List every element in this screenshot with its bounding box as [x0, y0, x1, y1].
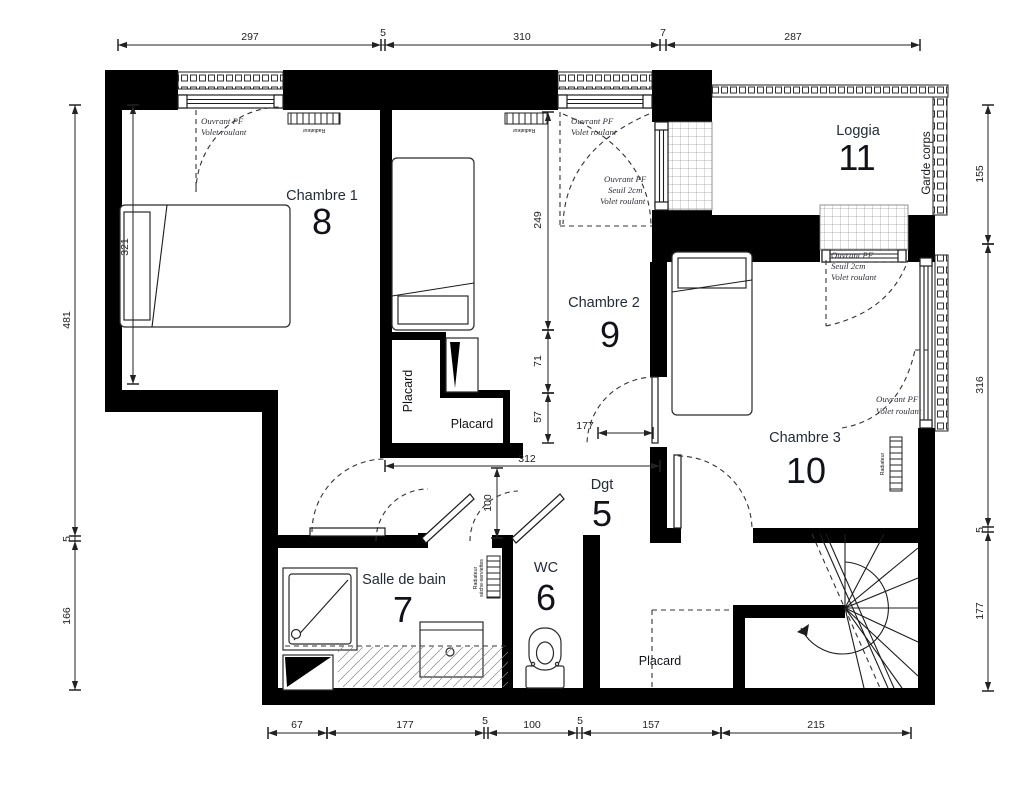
- dim-bottom-6: 157: [642, 719, 660, 731]
- annotation-c3-right-2: Volet roulant: [876, 406, 922, 416]
- annotation-c2-win-2: Volet roulant: [571, 127, 617, 137]
- dim-bottom-2: 177: [396, 719, 414, 731]
- room-label-dgt: Dgt: [591, 477, 614, 493]
- dim-hall-h: 100: [482, 494, 494, 512]
- dim-right-3: 5: [974, 527, 986, 533]
- shower: [283, 568, 357, 650]
- garde-corps-right: [933, 97, 947, 215]
- garde-corps-label: Garde corps: [921, 131, 933, 195]
- door-loggia: [655, 122, 712, 210]
- dim-top-5: 287: [784, 31, 802, 43]
- dim-right-2: 316: [974, 376, 986, 394]
- dim-c2-b: 71: [532, 355, 544, 367]
- dim-c2-c: 57: [532, 411, 544, 423]
- bathroom-cupboard: [283, 655, 333, 690]
- dim-bottom-4: 100: [523, 719, 541, 731]
- radiator-label-3: Radiateur: [880, 452, 886, 475]
- dim-bottom-5: 5: [577, 715, 583, 727]
- dim-left-2: 5: [61, 536, 73, 542]
- window-chambre1: [178, 72, 283, 108]
- room-label-sdb: Salle de bain: [362, 572, 446, 588]
- bed-chambre3: [672, 252, 752, 415]
- annotation-c1-win-1: Ouvrant PF: [201, 116, 244, 126]
- dim-hall-w: 312: [518, 453, 536, 465]
- bathroom-floor-hatch: [338, 647, 508, 687]
- door-leaf-chambre1: [310, 528, 385, 536]
- room-number-wc: 6: [536, 577, 556, 618]
- toilet: [526, 628, 564, 688]
- dim-bottom-1: 67: [291, 719, 303, 731]
- dim-top-4: 7: [660, 27, 666, 39]
- closet-label-1: Placard: [401, 370, 415, 412]
- dim-right-4: 177: [974, 602, 986, 620]
- annotation-loggia-door-3: Volet roulant: [600, 196, 646, 206]
- dim-door: 177: [576, 420, 594, 432]
- radiator-towel-label-2: sèche-serviettes: [479, 559, 485, 597]
- dim-left-3: 166: [61, 607, 73, 625]
- annotation-c2-win-1: Ouvrant PF: [571, 116, 614, 126]
- closet-box: [446, 338, 478, 392]
- door-leaf-chambre3: [674, 455, 681, 528]
- room-number-loggia: 11: [838, 137, 875, 178]
- dim-top-3: 310: [513, 31, 531, 43]
- room-number-chambre1: 8: [312, 201, 332, 242]
- annotation-c1-win-2: Volet roulant: [201, 127, 247, 137]
- walls: [105, 70, 935, 705]
- room-label-wc: WC: [534, 560, 558, 576]
- closet-label-2: Placard: [451, 417, 493, 431]
- radiator-towel: [487, 556, 500, 598]
- room-number-sdb: 7: [393, 589, 413, 630]
- dim-left-1: 481: [61, 311, 73, 329]
- dim-bottom-3: 5: [482, 715, 488, 727]
- door-leaf-wc: [512, 494, 564, 543]
- room-number-chambre3: 10: [786, 450, 826, 491]
- annotation-c3-right-1: Ouvrant PF: [876, 394, 919, 404]
- bed-chambre1: [120, 205, 290, 327]
- dim-top-2: 5: [380, 27, 386, 39]
- room-number-dgt: 5: [592, 493, 612, 534]
- annotation-loggia-door-2: Seuil 2cm: [608, 185, 642, 195]
- garde-corps-top: [712, 85, 948, 97]
- closet-label-3: Placard: [639, 654, 681, 668]
- radiator-label-2: Radiateur: [512, 127, 535, 133]
- room-label-chambre2: Chambre 2: [568, 295, 640, 311]
- dim-bottom-7: 215: [807, 719, 825, 731]
- radiator-chambre3: [890, 437, 902, 491]
- dim-right-1: 155: [974, 165, 986, 183]
- window-chambre3-right: [920, 255, 948, 431]
- radiator-chambre2: [505, 113, 547, 124]
- room-label-chambre3: Chambre 3: [769, 430, 841, 446]
- dim-top-1: 297: [241, 31, 259, 43]
- dim-bed1: 321: [119, 238, 131, 256]
- bed-chambre2: [392, 158, 474, 330]
- radiator-label-1: Radiateur: [302, 127, 325, 133]
- annotation-c3-top-1: Ouvrant PF: [831, 250, 874, 260]
- annotation-c3-top-2: Seuil 2cm: [831, 261, 865, 271]
- annotation-loggia-door-1: Ouvrant PF: [604, 174, 647, 184]
- floor-plan: Chambre 1 8 Chambre 2 9 Chambre 3 10 Log…: [0, 0, 1033, 800]
- room-number-chambre2: 9: [600, 314, 620, 355]
- radiator-chambre1: [288, 113, 340, 124]
- door-leaf-sdb: [422, 494, 474, 543]
- annotation-c3-top-3: Volet roulant: [831, 272, 877, 282]
- dim-c2-a: 249: [532, 211, 544, 229]
- window-chambre2: [558, 72, 652, 108]
- floor-plan-drawing: Chambre 1 8 Chambre 2 9 Chambre 3 10 Log…: [0, 0, 1033, 800]
